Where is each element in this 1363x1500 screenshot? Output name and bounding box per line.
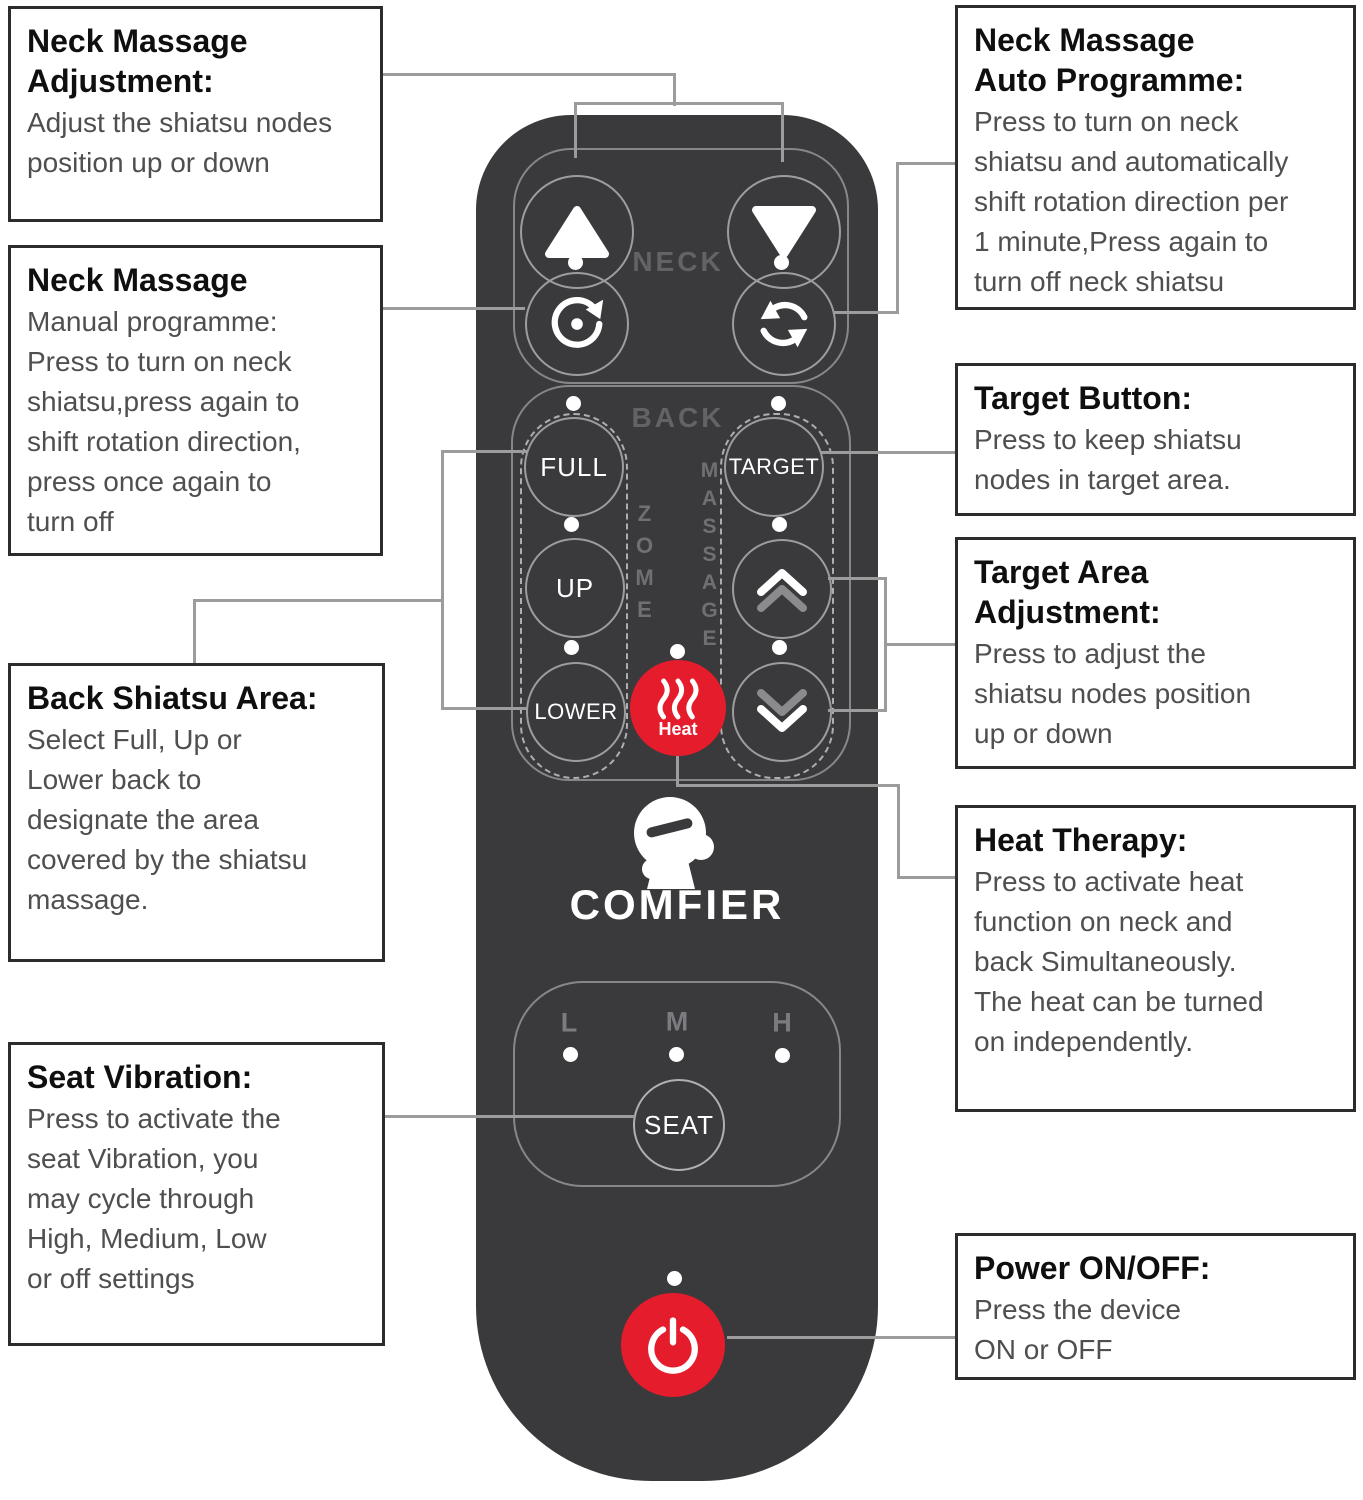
back-up-button[interactable]: UP [525, 538, 625, 638]
callout-title: Neck Massage Adjustment: [27, 21, 370, 101]
neck-section-label: NECK [632, 246, 723, 278]
connector-line [676, 784, 900, 787]
connector-line [441, 450, 444, 710]
brand-wordmark: COMFIER [476, 881, 878, 929]
led-indicator [771, 396, 786, 411]
connector-line [884, 643, 955, 646]
led-indicator [564, 517, 579, 532]
connector-line [834, 311, 898, 314]
callout-body: Press to activate the seat Vibration, yo… [27, 1099, 372, 1299]
chevron-up-icon [747, 563, 817, 615]
callout-target-button: Target Button: Press to keep shiatsu nod… [955, 363, 1356, 516]
led-indicator [772, 640, 787, 655]
led-indicator [568, 255, 583, 270]
callout-body: Press to adjust the shiatsu nodes positi… [974, 634, 1343, 754]
neck-auto-rotation-button[interactable] [732, 272, 836, 376]
seat-button[interactable]: SEAT [633, 1079, 725, 1171]
massage-vertical-label: MASSAGE [697, 459, 721, 655]
callout-title: Target Area Adjustment: [974, 552, 1343, 632]
callout-heat-therapy: Heat Therapy: Press to activate heat fun… [955, 805, 1356, 1112]
connector-line [781, 102, 784, 162]
connector-line [441, 450, 528, 453]
led-indicator [563, 1047, 578, 1062]
led-indicator [775, 1048, 790, 1063]
power-button[interactable] [621, 1293, 725, 1397]
back-lower-button[interactable]: LOWER [526, 662, 626, 762]
connector-line [676, 756, 679, 787]
connector-line [193, 599, 444, 602]
connector-line [383, 73, 676, 76]
target-label: TARGET [729, 454, 820, 480]
callout-body: Press to keep shiatsu nodes in target ar… [974, 420, 1343, 500]
callout-title: Seat Vibration: [27, 1057, 372, 1097]
rotate-cycle-icon [753, 293, 815, 355]
connector-line [828, 577, 886, 580]
callout-body: Press to activate heat function on neck … [974, 862, 1343, 1062]
back-lower-label: LOWER [534, 699, 617, 725]
seat-level-label-h: H [772, 1008, 792, 1039]
callout-seat-vibration: Seat Vibration: Press to activate the se… [8, 1042, 385, 1346]
connector-line [193, 599, 196, 664]
connector-line [897, 784, 900, 879]
connector-line [727, 1336, 955, 1339]
back-section-label: BACK [632, 402, 725, 434]
product-diagram-canvas: NECK BACK FULL TARGET ZOME [0, 0, 1363, 1500]
connector-line [820, 451, 955, 454]
target-down-button[interactable] [732, 662, 832, 762]
callout-target-area-adjustment: Target Area Adjustment: Press to adjust … [955, 537, 1356, 769]
remote-control: NECK BACK FULL TARGET ZOME [476, 115, 878, 1481]
target-button[interactable]: TARGET [724, 417, 824, 517]
seat-label: SEAT [644, 1110, 714, 1141]
connector-line [574, 102, 577, 158]
callout-title: Power ON/OFF: [974, 1248, 1343, 1288]
down-triangle-icon [751, 205, 817, 259]
led-indicator [772, 517, 787, 532]
seat-level-label-m: M [666, 1007, 689, 1038]
led-indicator [774, 255, 789, 270]
heat-label: Heat [658, 719, 697, 740]
led-indicator [670, 644, 685, 659]
seat-level-label-l: L [561, 1008, 578, 1039]
callout-neck-massage-auto: Neck Massage Auto Programme: Press to tu… [955, 5, 1356, 310]
up-triangle-icon [544, 205, 610, 259]
callout-back-shiatsu-area: Back Shiatsu Area: Select Full, Up or Lo… [8, 663, 385, 962]
callout-title: Back Shiatsu Area: [27, 678, 372, 718]
callout-neck-massage-manual: Neck Massage Manual programme: Press to … [8, 245, 383, 556]
callout-power-on-off: Power ON/OFF: Press the device ON or OFF [955, 1233, 1356, 1380]
connector-line [383, 307, 525, 310]
back-full-button[interactable]: FULL [524, 417, 624, 517]
led-indicator [564, 640, 579, 655]
callout-neck-massage-adjustment: Neck Massage Adjustment: Adjust the shia… [8, 6, 383, 222]
connector-line [574, 102, 784, 105]
led-indicator [667, 1271, 682, 1286]
callout-title: Heat Therapy: [974, 820, 1343, 860]
connector-line [897, 876, 955, 879]
led-indicator [669, 1047, 684, 1062]
back-full-label: FULL [540, 452, 608, 483]
callout-body: Adjust the shiatsu nodes position up or … [27, 103, 370, 183]
connector-line [898, 162, 955, 165]
neck-manual-rotation-button[interactable] [525, 272, 629, 376]
callout-body: Press the device ON or OFF [974, 1290, 1343, 1370]
heat-waves-icon [651, 677, 705, 721]
connector-line [441, 707, 528, 710]
heat-button[interactable]: Heat [630, 660, 726, 756]
back-up-label: UP [556, 573, 594, 604]
callout-title: Neck Massage [27, 260, 370, 300]
chevron-down-icon [747, 686, 817, 738]
callout-body: Manual programme: Press to turn on neck … [27, 302, 370, 542]
callout-body: Select Full, Up or Lower back to designa… [27, 720, 372, 920]
power-icon [644, 1316, 702, 1374]
connector-line [828, 709, 886, 712]
zone-vertical-label: ZOME [631, 501, 657, 629]
callout-title: Target Button: [974, 378, 1343, 418]
rotate-clockwise-icon [546, 293, 608, 355]
connector-line [385, 1115, 635, 1118]
callout-body: Press to turn on neck shiatsu and automa… [974, 102, 1343, 302]
callout-title: Neck Massage Auto Programme: [974, 20, 1343, 100]
target-up-button[interactable] [732, 539, 832, 639]
led-indicator [566, 396, 581, 411]
connector-line [896, 162, 899, 314]
